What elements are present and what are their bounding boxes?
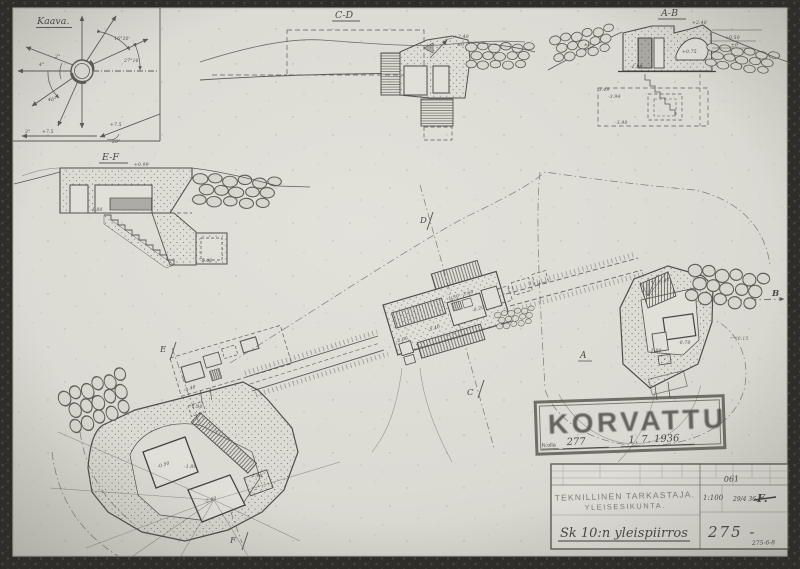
scanned-drawing: Kaava. 16°20' 27°16' 4° 2° 46° 3° +7.5 +…: [0, 0, 800, 569]
vignette: [13, 8, 787, 556]
drawing-svg: Kaava. 16°20' 27°16' 4° 2° 46° 3° +7.5 +…: [0, 0, 800, 569]
